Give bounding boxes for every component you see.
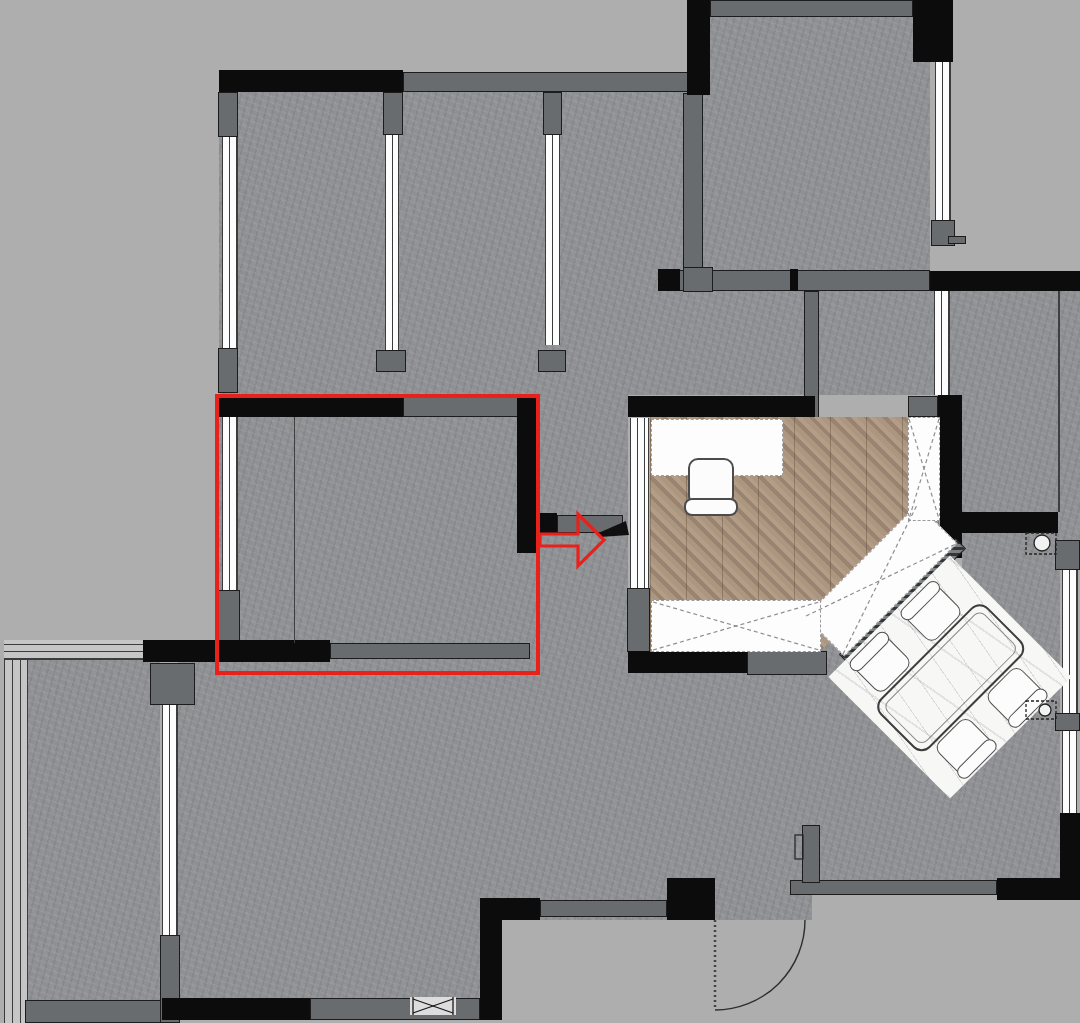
wall-gray — [376, 350, 406, 372]
window-strip — [385, 135, 399, 350]
divider-line — [1058, 291, 1060, 512]
wall-gray — [802, 825, 820, 883]
wall-black — [913, 0, 953, 62]
wall-gray — [790, 880, 997, 895]
floor-area — [705, 17, 930, 292]
wall-gray — [25, 1000, 165, 1023]
wall-gray — [1055, 540, 1080, 570]
wall-black — [667, 878, 715, 920]
wall-gray — [710, 0, 913, 17]
wall-gray — [540, 900, 667, 917]
window-strip — [1062, 570, 1078, 713]
wall-black — [687, 0, 710, 95]
wall-black — [997, 878, 1080, 900]
wall-black — [219, 70, 403, 92]
window-strip — [934, 291, 950, 395]
window-strip — [162, 700, 178, 935]
wall-gray — [557, 515, 623, 533]
wall-black — [162, 998, 310, 1020]
wall-gray — [683, 267, 713, 292]
desk-chair — [688, 458, 734, 506]
wall-black — [628, 396, 815, 417]
floor-plan — [0, 0, 1080, 1023]
wall-black — [628, 651, 747, 673]
outside-area — [812, 898, 1080, 1023]
wardrobe-right — [908, 417, 940, 521]
highlight-rectangle — [215, 394, 540, 675]
floor-area — [1060, 291, 1080, 541]
wall-gray — [683, 93, 703, 270]
wall-gray — [627, 588, 650, 652]
window-strip — [222, 137, 238, 349]
floor-area — [28, 658, 160, 1002]
wall-gray — [383, 92, 403, 135]
window-strip — [935, 62, 951, 220]
floor-area — [540, 395, 628, 680]
wall-black — [790, 269, 798, 291]
wall-gray — [948, 236, 966, 244]
wall-black — [540, 513, 557, 533]
window-strip — [4, 640, 28, 1023]
wall-black — [930, 271, 1080, 291]
wall-gray — [543, 92, 562, 135]
wardrobe-bottom — [651, 600, 821, 652]
wall-gray — [538, 350, 566, 372]
window-strip — [1062, 731, 1077, 813]
wall-black — [480, 898, 502, 1020]
window-strip — [4, 640, 144, 660]
window-strip — [545, 135, 560, 345]
wall-gray — [403, 72, 690, 92]
wall-black — [962, 512, 1058, 533]
wall-gray — [218, 348, 238, 393]
floor-area — [219, 92, 705, 395]
wall-black — [1060, 813, 1080, 880]
wall-gray — [150, 663, 195, 705]
wall-gray — [1055, 713, 1080, 731]
wall-gray — [218, 92, 238, 137]
window-strip — [630, 418, 649, 588]
wall-black — [658, 269, 680, 291]
wall-gray — [908, 396, 938, 417]
wall-gray — [310, 998, 480, 1020]
wall-gray — [747, 651, 827, 675]
